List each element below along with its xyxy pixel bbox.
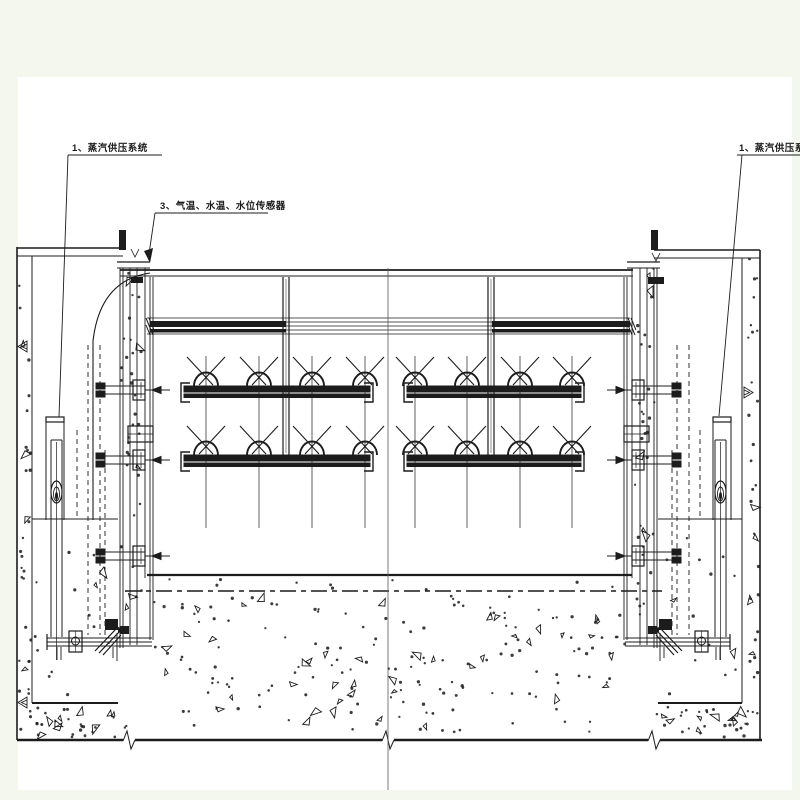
- stipple-dot: [663, 724, 665, 726]
- stipple-dot: [754, 656, 756, 658]
- stipple-dot: [459, 729, 461, 731]
- stipple-dot: [564, 721, 566, 723]
- stipple-dot: [682, 731, 684, 733]
- stipple-dot: [637, 536, 639, 538]
- stipple-dot: [95, 727, 97, 729]
- stipple-dot: [228, 686, 229, 687]
- stipple-dot: [357, 703, 359, 705]
- stipple-dot: [36, 582, 37, 583]
- stipple-dot: [36, 723, 38, 725]
- stipple-dot: [113, 717, 114, 718]
- stipple-dot: [134, 395, 135, 396]
- stipple-dot: [288, 720, 289, 721]
- stipple-dot: [556, 674, 558, 676]
- stipple-dot: [294, 672, 296, 674]
- stipple-dot: [709, 644, 710, 645]
- stipple-dot: [20, 550, 22, 552]
- stipple-dot: [296, 582, 297, 583]
- stipple-dot: [511, 654, 513, 656]
- stipple-dot: [67, 708, 69, 710]
- stipple-dot: [753, 533, 754, 534]
- stipple-dot: [646, 456, 648, 458]
- stipple-dot: [212, 677, 214, 679]
- stipple-dot: [570, 637, 572, 639]
- stipple-dot: [638, 331, 640, 333]
- stipple-dot: [453, 604, 455, 606]
- stipple-dot: [571, 616, 573, 618]
- stipple-dot: [688, 728, 689, 729]
- stipple-dot: [29, 469, 31, 471]
- stipple-dot: [37, 707, 39, 709]
- stipple-dot: [643, 603, 644, 604]
- stipple-dot: [680, 715, 681, 716]
- stipple-dot: [28, 395, 30, 397]
- stipple-dot: [685, 709, 687, 711]
- stipple-dot: [619, 614, 621, 616]
- stipple-dot: [271, 603, 273, 605]
- stipple-dot: [640, 525, 641, 526]
- stipple-dot: [138, 423, 140, 425]
- stipple-dot: [180, 659, 182, 661]
- stipple-dot: [500, 653, 502, 655]
- cad-drawing-stage: 1、蒸汽供压系统 3、气温、水温、水位传感器 1、蒸汽供压系统: [0, 0, 800, 800]
- stipple-dot: [588, 676, 590, 678]
- stipple-dot: [419, 728, 421, 730]
- stipple-dot: [757, 712, 758, 713]
- stipple-dot: [710, 573, 712, 575]
- stipple-dot: [231, 597, 233, 599]
- bolt-head: [96, 461, 105, 467]
- bolt-head: [672, 549, 681, 555]
- stipple-dot: [453, 731, 455, 733]
- stipple-dot: [19, 285, 20, 286]
- stipple-dot: [424, 663, 425, 664]
- stipple-dot: [126, 356, 128, 358]
- stipple-dot: [67, 694, 69, 696]
- stipple-dot: [511, 693, 513, 695]
- stipple-dot: [615, 636, 617, 638]
- stipple-dot: [578, 648, 580, 650]
- stipple-dot: [237, 708, 239, 710]
- stipple-dot: [515, 627, 516, 628]
- stipple-dot: [30, 639, 32, 641]
- stipple-dot: [350, 669, 351, 670]
- stipple-dot: [336, 659, 338, 661]
- stipple-dot: [188, 711, 190, 713]
- stipple-dot: [126, 451, 128, 453]
- label-sensors: 3、气温、水温、水位传感器: [160, 200, 286, 212]
- stipple-dot: [639, 605, 641, 607]
- stipple-dot: [20, 728, 22, 730]
- stipple-dot: [713, 709, 715, 711]
- stipple-dot: [22, 537, 23, 538]
- stipple-dot: [285, 637, 286, 638]
- stipple-dot: [517, 639, 519, 641]
- stipple-dot: [72, 734, 74, 736]
- stipple-dot: [84, 735, 86, 737]
- stipple-dot: [133, 515, 134, 516]
- stipple-dot: [748, 414, 750, 416]
- stipple-dot: [417, 681, 419, 683]
- stipple-dot: [589, 721, 590, 722]
- stipple-dot: [458, 601, 460, 603]
- stipple-dot: [576, 581, 578, 583]
- stipple-dot: [692, 615, 694, 617]
- spray-pipe: [184, 394, 370, 398]
- stipple-dot: [410, 631, 412, 633]
- stipple-dot: [28, 689, 29, 690]
- stipple-dot: [442, 729, 444, 731]
- bolt-head: [672, 461, 681, 467]
- stipple-dot: [536, 671, 538, 673]
- stipple-dot: [51, 671, 53, 673]
- stipple-dot: [331, 587, 333, 589]
- stipple-dot: [226, 684, 228, 686]
- stipple-dot: [341, 672, 343, 674]
- stipple-dot: [28, 660, 30, 662]
- stipple-dot: [432, 712, 434, 714]
- stipple-dot: [268, 690, 270, 692]
- stipple-dot: [23, 570, 25, 572]
- label-steam-supply-left: 1、蒸汽供压系统: [72, 142, 148, 154]
- stipple-dot: [656, 713, 658, 715]
- stipple-dot: [606, 682, 607, 683]
- stipple-dot: [439, 688, 441, 690]
- stipple-dot: [27, 449, 29, 451]
- stipple-dot: [556, 708, 558, 710]
- stipple-dot: [392, 579, 393, 580]
- stipple-dot: [452, 709, 454, 711]
- stipple-dot: [754, 639, 756, 641]
- stipple-dot: [743, 735, 745, 737]
- stipple-dot: [93, 626, 95, 628]
- stipple-dot: [578, 675, 580, 677]
- stipple-dot: [745, 723, 746, 724]
- stipple-dot: [423, 627, 425, 629]
- stipple-dot: [48, 675, 50, 677]
- stipple-dot: [137, 474, 139, 476]
- stipple-dot: [538, 609, 539, 610]
- stipple-dot: [29, 716, 31, 718]
- stipple-dot: [506, 625, 507, 626]
- stipple-dot: [25, 470, 27, 472]
- stipple-dot: [574, 650, 575, 651]
- guide-rail-stub: [651, 230, 658, 250]
- stipple-dot: [132, 424, 134, 426]
- stipple-dot: [724, 674, 726, 676]
- stipple-dot: [198, 621, 199, 622]
- stipple-dot: [642, 554, 643, 555]
- stipple-dot: [643, 413, 644, 414]
- stipple-dot: [21, 555, 23, 557]
- stipple-dot: [653, 268, 654, 269]
- stipple-dot: [654, 402, 655, 403]
- stipple-dot: [585, 653, 587, 655]
- stipple-dot: [114, 736, 116, 738]
- stipple-dot: [45, 712, 47, 714]
- stipple-dot: [442, 659, 444, 661]
- guide-rail-stub: [119, 230, 126, 250]
- stipple-dot: [736, 729, 738, 731]
- stipple-dot: [504, 617, 505, 618]
- stipple-dot: [21, 567, 22, 568]
- stipple-dot: [228, 620, 230, 622]
- stipple-dot: [706, 711, 707, 712]
- stipple-dot: [723, 736, 725, 738]
- stipple-dot: [68, 551, 70, 553]
- stipple-dot: [641, 411, 642, 412]
- stipple-dot: [130, 339, 131, 340]
- stipple-dot: [634, 484, 635, 485]
- stipple-dot: [740, 727, 742, 729]
- stipple-dot: [128, 317, 130, 319]
- stipple-dot: [750, 460, 752, 462]
- stipple-dot: [120, 546, 122, 548]
- stipple-dot: [411, 666, 412, 667]
- stipple-dot: [641, 344, 643, 346]
- stipple-dot: [668, 693, 670, 695]
- stipple-dot: [752, 488, 754, 490]
- stipple-dot: [182, 710, 184, 712]
- stipple-dot: [18, 690, 20, 692]
- stipple-dot: [552, 617, 553, 618]
- stipple-dot: [259, 706, 261, 708]
- bolt-head: [96, 557, 105, 563]
- stipple-dot: [375, 638, 377, 640]
- stipple-dot: [29, 710, 31, 712]
- bolt-head: [672, 453, 681, 459]
- stipple-dot: [751, 382, 752, 383]
- stipple-dot: [41, 723, 43, 725]
- stipple-dot: [462, 687, 464, 689]
- stipple-dot: [411, 656, 413, 658]
- stipple-dot: [519, 649, 521, 651]
- stipple-dot: [212, 682, 213, 683]
- stipple-dot: [749, 660, 751, 662]
- stipple-dot: [492, 692, 493, 693]
- stipple-dot: [644, 334, 646, 336]
- stipple-dot: [351, 687, 353, 689]
- stipple-dot: [314, 608, 316, 610]
- stipple-dot: [652, 533, 654, 535]
- stipple-dot: [451, 681, 452, 682]
- stipple-dot: [134, 413, 136, 415]
- stipple-dot: [493, 612, 495, 614]
- stipple-dot: [138, 296, 140, 298]
- stipple-dot: [505, 643, 507, 645]
- stipple-dot: [365, 661, 367, 663]
- stipple-dot: [331, 665, 332, 666]
- stipple-dot: [686, 537, 687, 538]
- stipple-dot: [213, 618, 215, 620]
- stipple-dot: [529, 693, 531, 695]
- stipple-dot: [28, 359, 30, 361]
- stipple-dot: [258, 694, 260, 696]
- stipple-dot: [312, 676, 314, 678]
- stipple-dot: [265, 628, 266, 629]
- stipple-dot: [28, 693, 30, 695]
- stipple-dot: [752, 711, 753, 712]
- spray-pipe: [184, 455, 370, 461]
- stipple-dot: [79, 729, 81, 731]
- stipple-dot: [751, 331, 753, 333]
- stipple-dot: [698, 559, 700, 561]
- stipple-dot: [34, 636, 36, 638]
- stipple-dot: [508, 596, 510, 598]
- stipple-dot: [403, 621, 405, 623]
- spray-pipe: [184, 386, 370, 392]
- stipple-dot: [385, 617, 387, 619]
- stipple-dot: [63, 708, 65, 710]
- stipple-dot: [609, 678, 611, 680]
- stipple-dot: [193, 724, 195, 726]
- stipple-dot: [131, 373, 133, 375]
- stipple-dot: [681, 712, 682, 713]
- spray-pipe: [407, 394, 581, 398]
- stipple-dot: [591, 647, 593, 649]
- bolt-head: [96, 383, 105, 389]
- stipple-dot: [648, 417, 650, 419]
- stipple-dot: [120, 380, 122, 382]
- stipple-dot: [271, 685, 273, 687]
- stipple-dot: [753, 278, 755, 280]
- stipple-dot: [734, 575, 735, 576]
- stipple-dot: [667, 706, 669, 708]
- stipple-dot: [327, 647, 329, 649]
- stipple-dot: [219, 579, 221, 581]
- stipple-dot: [88, 614, 90, 616]
- stipple-dot: [425, 588, 427, 590]
- stipple-dot: [443, 692, 445, 694]
- stipple-dot: [724, 724, 726, 726]
- bolt-head: [672, 557, 681, 563]
- stipple-dot: [154, 646, 156, 648]
- stipple-dot: [93, 554, 95, 556]
- drawing-sheet: [18, 77, 792, 790]
- stipple-dot: [757, 631, 759, 633]
- stipple-dot: [556, 617, 557, 618]
- stipple-dot: [649, 345, 651, 347]
- bolt-head: [96, 549, 105, 555]
- engineering-drawing: 1、蒸汽供压系统 3、气温、水温、水位传感器 1、蒸汽供压系统: [0, 0, 800, 800]
- bolt-head: [96, 453, 105, 459]
- stipple-dot: [74, 589, 76, 591]
- stipple-dot: [141, 590, 143, 592]
- stipple-dot: [746, 723, 748, 725]
- stipple-dot: [452, 598, 453, 599]
- stipple-dot: [132, 294, 133, 295]
- stipple-dot: [216, 584, 218, 586]
- stipple-dot: [340, 647, 342, 649]
- stipple-dot: [589, 731, 590, 732]
- stipple-dot: [648, 388, 650, 390]
- stipple-dot: [139, 503, 141, 505]
- stipple-dot: [422, 703, 424, 705]
- stipple-dot: [317, 611, 318, 612]
- stipple-dot: [694, 659, 696, 661]
- stipple-dot: [729, 724, 731, 726]
- stipple-dot: [747, 711, 748, 712]
- stipple-dot: [121, 367, 123, 369]
- stipple-dot: [251, 597, 253, 599]
- stipple-dot: [23, 578, 25, 580]
- stipple-dot: [557, 682, 559, 684]
- stipple-dot: [81, 725, 83, 727]
- stipple-dot: [305, 694, 307, 696]
- stipple-dot: [19, 307, 21, 309]
- stipple-dot: [650, 572, 652, 574]
- stipple-dot: [756, 400, 758, 402]
- stipple-dot: [637, 324, 639, 326]
- stipple-dot: [601, 637, 603, 639]
- bolt-head: [672, 383, 681, 389]
- stipple-dot: [214, 666, 216, 668]
- stipple-dot: [124, 727, 125, 728]
- stipple-dot: [467, 663, 469, 665]
- stipple-dot: [755, 484, 757, 486]
- stipple-dot: [330, 584, 332, 586]
- stipple-dot: [181, 607, 183, 609]
- stipple-dot: [390, 697, 391, 698]
- stipple-dot: [704, 725, 706, 727]
- stipple-dot: [639, 402, 641, 404]
- spray-pipe: [407, 463, 581, 467]
- stipple-dot: [753, 676, 755, 678]
- stipple-dot: [535, 696, 536, 697]
- stipple-dot: [21, 576, 23, 578]
- stipple-dot: [217, 682, 218, 683]
- stipple-dot: [68, 718, 69, 719]
- stipple-dot: [395, 668, 397, 670]
- stipple-dot: [486, 659, 488, 661]
- stipple-dot: [646, 431, 648, 433]
- stipple-dot: [426, 712, 427, 713]
- stipple-dot: [195, 672, 197, 674]
- stipple-dot: [207, 692, 209, 694]
- stipple-dot: [130, 382, 132, 384]
- stipple-dot: [749, 258, 751, 260]
- stipple-dot: [748, 337, 749, 338]
- stipple-dot: [450, 595, 452, 597]
- stipple-dot: [399, 716, 400, 717]
- stipple-dot: [403, 701, 405, 703]
- stipple-dot: [699, 711, 700, 712]
- stipple-dot: [636, 598, 638, 600]
- stipple-dot: [373, 644, 374, 645]
- stipple-dot: [641, 437, 643, 439]
- stipple-dot: [753, 297, 755, 299]
- stipple-dot: [462, 605, 464, 607]
- stipple-dot: [25, 446, 27, 448]
- stipple-dot: [26, 410, 28, 412]
- spray-pipe: [184, 463, 370, 467]
- bolt-head: [96, 391, 105, 397]
- stipple-dot: [169, 579, 170, 580]
- stipple-dot: [71, 736, 73, 738]
- stipple-dot: [419, 684, 420, 685]
- bolt-head: [672, 391, 681, 397]
- stipple-dot: [181, 656, 183, 658]
- stipple-dot: [752, 443, 754, 445]
- stipple-dot: [182, 603, 184, 605]
- stipple-dot: [318, 609, 319, 610]
- stipple-dot: [298, 666, 299, 667]
- stipple-dot: [639, 614, 640, 615]
- stipple-dot: [757, 330, 758, 331]
- stipple-dot: [352, 729, 354, 731]
- stipple-dot: [362, 626, 364, 628]
- stipple-dot: [490, 607, 491, 608]
